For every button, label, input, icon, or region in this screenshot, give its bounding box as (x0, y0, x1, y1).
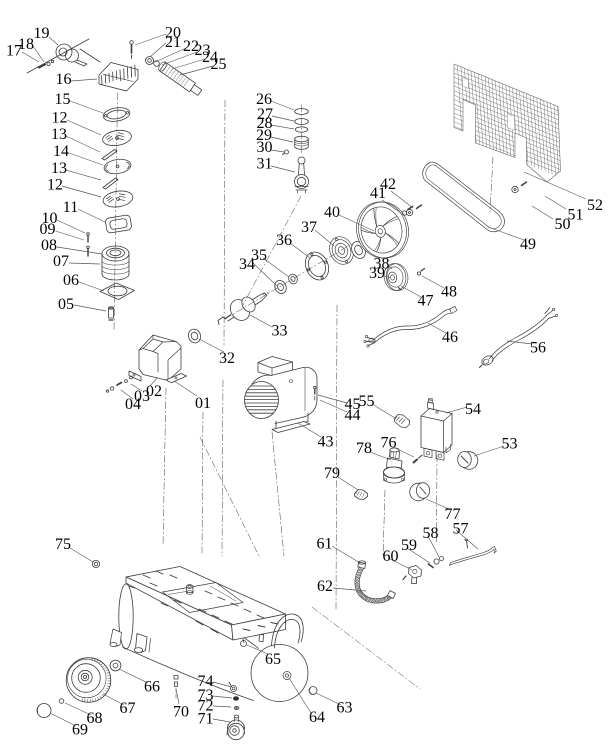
svg-text:08: 08 (41, 237, 57, 254)
svg-text:53: 53 (502, 436, 518, 453)
svg-text:33: 33 (272, 323, 288, 340)
svg-text:59: 59 (401, 537, 417, 554)
svg-text:75: 75 (55, 536, 71, 553)
svg-text:13: 13 (51, 160, 67, 177)
svg-text:16: 16 (56, 71, 72, 88)
svg-text:25: 25 (211, 56, 227, 73)
svg-text:78: 78 (356, 440, 372, 457)
svg-text:74: 74 (198, 673, 214, 690)
svg-text:06: 06 (63, 272, 79, 289)
svg-text:52: 52 (587, 197, 603, 214)
svg-text:15: 15 (55, 91, 71, 108)
svg-text:79: 79 (324, 465, 340, 482)
svg-text:66: 66 (144, 679, 160, 696)
svg-text:51: 51 (568, 207, 584, 224)
svg-text:47: 47 (418, 293, 434, 310)
svg-text:39: 39 (369, 265, 385, 282)
svg-text:14: 14 (53, 143, 69, 160)
svg-text:68: 68 (87, 710, 103, 727)
svg-text:57: 57 (453, 521, 469, 538)
svg-text:13: 13 (51, 126, 67, 143)
svg-text:67: 67 (120, 700, 136, 717)
svg-text:56: 56 (530, 340, 546, 357)
svg-text:62: 62 (317, 578, 333, 595)
svg-text:30: 30 (257, 139, 273, 156)
svg-text:49: 49 (520, 236, 536, 253)
svg-text:77: 77 (445, 506, 461, 523)
svg-text:70: 70 (173, 704, 189, 721)
svg-text:31: 31 (257, 156, 273, 173)
svg-text:36: 36 (276, 232, 292, 249)
svg-text:11: 11 (63, 199, 78, 216)
svg-text:12: 12 (52, 110, 68, 127)
svg-text:19: 19 (34, 25, 50, 42)
svg-text:43: 43 (318, 434, 334, 451)
svg-text:54: 54 (465, 401, 481, 418)
svg-text:07: 07 (53, 253, 69, 270)
svg-text:63: 63 (337, 700, 353, 717)
svg-text:46: 46 (442, 329, 458, 346)
svg-text:04: 04 (125, 396, 141, 413)
svg-text:76: 76 (381, 435, 397, 452)
svg-text:18: 18 (18, 36, 34, 53)
svg-text:55: 55 (359, 393, 375, 410)
svg-text:64: 64 (309, 709, 325, 726)
svg-text:32: 32 (219, 350, 235, 367)
svg-text:58: 58 (423, 525, 439, 542)
svg-text:05: 05 (58, 296, 74, 313)
svg-text:21: 21 (165, 34, 181, 51)
svg-text:60: 60 (383, 548, 399, 565)
svg-text:12: 12 (47, 177, 63, 194)
svg-text:40: 40 (324, 204, 340, 221)
svg-text:35: 35 (251, 247, 267, 264)
svg-text:69: 69 (72, 722, 88, 739)
svg-text:01: 01 (195, 395, 211, 412)
svg-text:42: 42 (380, 176, 396, 193)
svg-text:37: 37 (301, 219, 317, 236)
svg-text:48: 48 (441, 284, 457, 301)
svg-text:61: 61 (317, 536, 333, 553)
svg-text:10: 10 (42, 210, 58, 227)
svg-text:65: 65 (265, 651, 281, 668)
